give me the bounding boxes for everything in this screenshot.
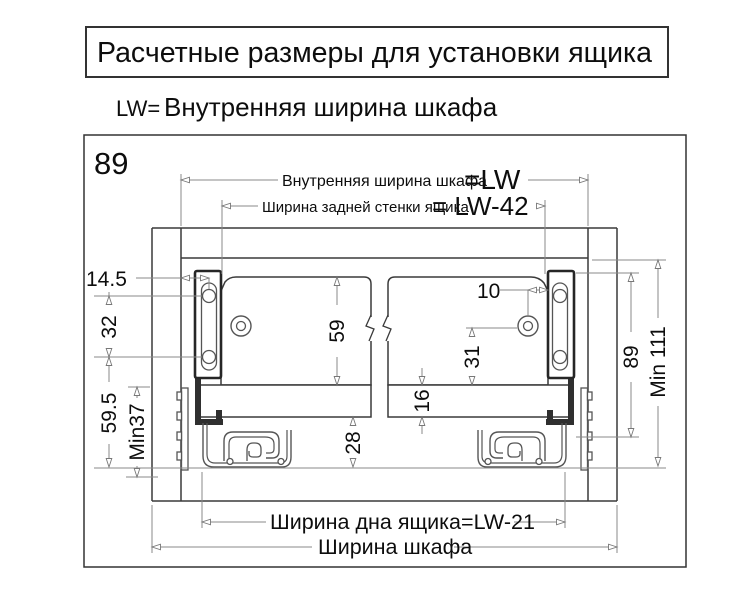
- dim-min37: Min37: [126, 403, 149, 460]
- subtitle-text: Внутренняя ширина шкафа: [164, 92, 498, 122]
- dim-min111: Min 111: [647, 326, 670, 398]
- dim-16: 16: [411, 389, 434, 412]
- dim-89-right: 89: [620, 345, 643, 368]
- subtitle: LW= Внутренняя ширина шкафа: [116, 92, 498, 122]
- dim-28: 28: [342, 431, 365, 454]
- drawer-installation-drawing: Расчетные размеры для установки ящика LW…: [0, 0, 750, 600]
- dim-10: 10: [477, 280, 500, 303]
- diagram-canvas: Расчетные размеры для установки ящика LW…: [0, 0, 750, 600]
- dim-bottom-width-label: Ширина дна ящика=LW-21: [270, 510, 535, 534]
- dim-cabinet-width-label: Ширина шкафа: [318, 535, 472, 559]
- series-label: 89: [94, 146, 128, 181]
- subtitle-lw: LW=: [116, 96, 160, 121]
- drawer-bottom-left: [198, 385, 371, 417]
- dim-59: 59: [326, 319, 349, 342]
- page-title: Расчетные размеры для установки ящика: [97, 37, 652, 69]
- dim-32: 32: [98, 315, 121, 338]
- dim-14-5: 14.5: [86, 268, 127, 291]
- dim-31: 31: [461, 345, 484, 368]
- dim-59-5: 59.5: [98, 393, 121, 434]
